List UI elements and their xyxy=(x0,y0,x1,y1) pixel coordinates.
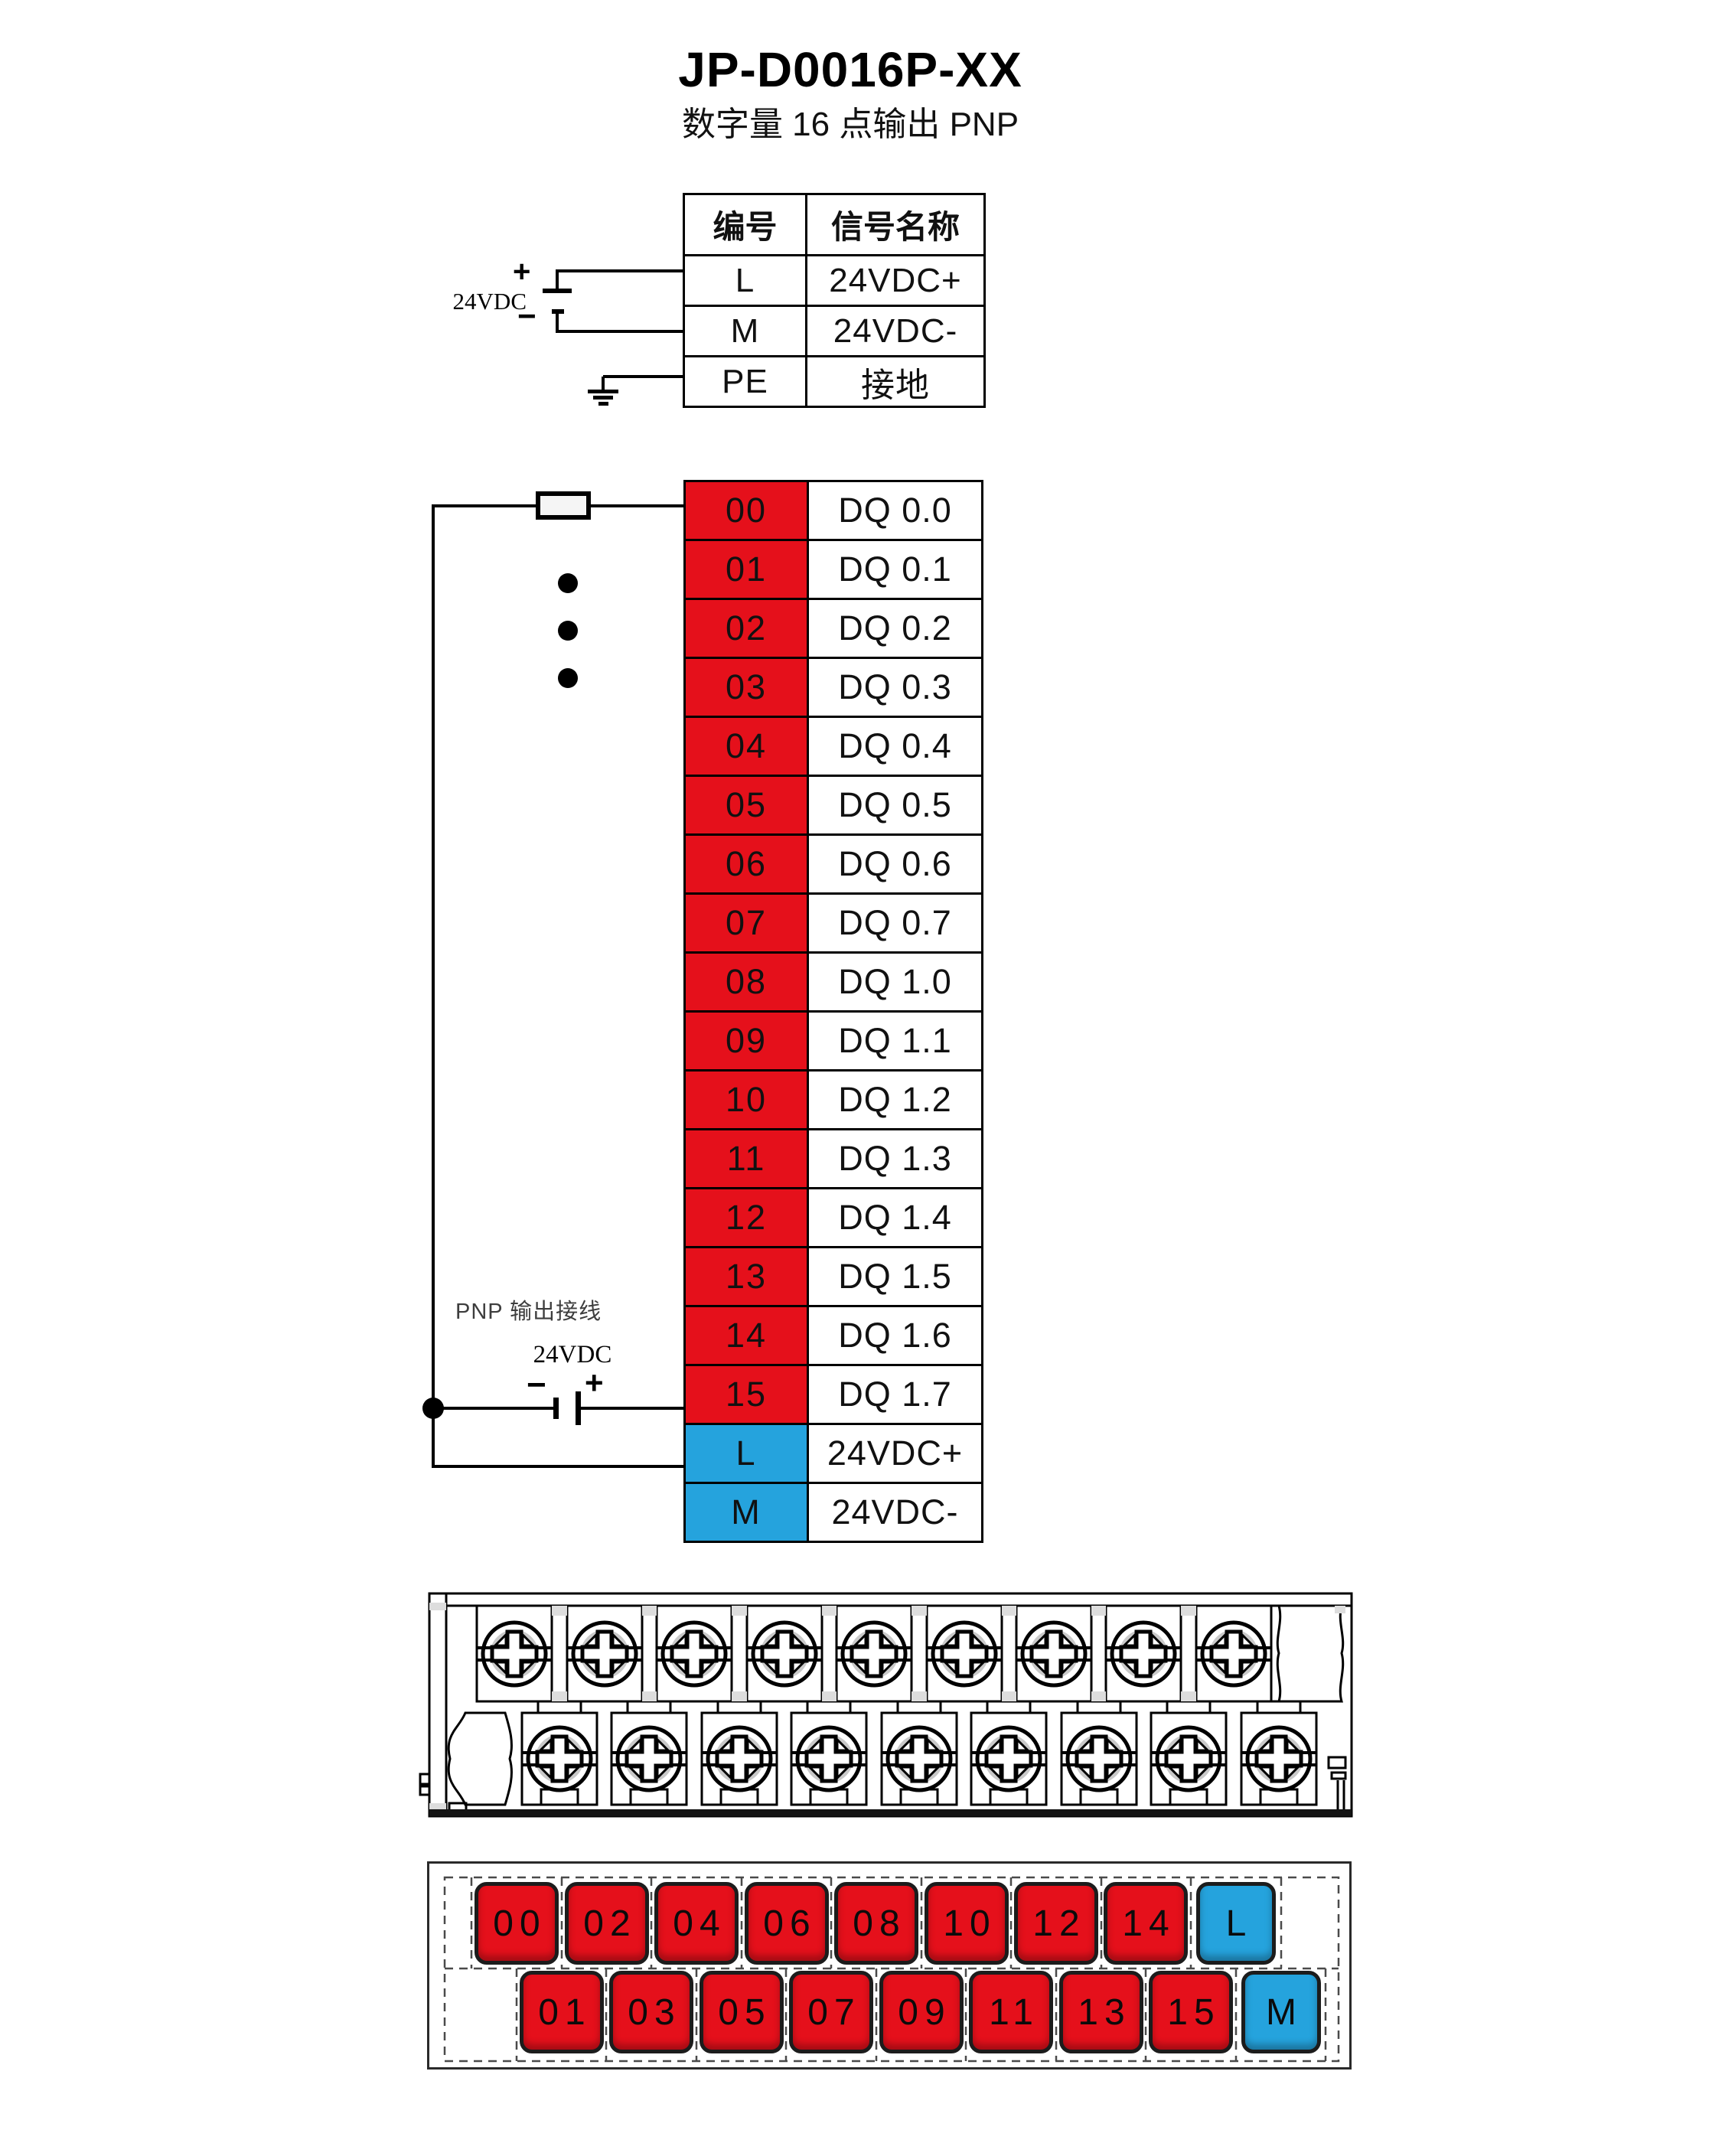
terminal-pad: 04 xyxy=(654,1882,739,1965)
pin-cell: 00 xyxy=(686,482,809,539)
table-row: 02DQ 0.2 xyxy=(686,598,981,657)
pin-cell: 13 xyxy=(686,1248,809,1305)
terminal-pad: 09 xyxy=(879,1971,964,2053)
terminal-pad: 03 xyxy=(609,1971,693,2053)
top-psu-wiring xyxy=(557,271,683,390)
table-row: 11DQ 1.3 xyxy=(686,1128,981,1187)
pin-cell: 02 xyxy=(686,600,809,657)
table-row: 12DQ 1.4 xyxy=(686,1187,981,1246)
signal-cell: 24VDC- xyxy=(809,1484,981,1541)
terminal-pad: 10 xyxy=(925,1882,1009,1965)
pin-cell: 15 xyxy=(686,1366,809,1423)
pin-cell: 06 xyxy=(686,836,809,892)
ground-icon xyxy=(588,390,618,406)
table-row: 07DQ 0.7 xyxy=(686,892,981,951)
signal-cell: DQ 1.0 xyxy=(809,954,981,1010)
io-terminal-table: 00DQ 0.0 01DQ 0.1 02DQ 0.2 03DQ 0.3 04DQ… xyxy=(683,480,983,1543)
terminal-pad: 08 xyxy=(834,1882,918,1965)
signal-cell: DQ 1.2 xyxy=(809,1071,981,1128)
terminal-pad: 02 xyxy=(565,1882,649,1965)
signal-cell: DQ 0.4 xyxy=(809,718,981,775)
signal-cell: 24VDC+ xyxy=(809,1425,981,1482)
table-row: 06DQ 0.6 xyxy=(686,833,981,892)
table-row: 10DQ 1.2 xyxy=(686,1069,981,1128)
pin-cell: L xyxy=(685,256,807,305)
power-table-header-row: 编号 信号名称 xyxy=(685,195,983,254)
table-row: PE 接地 xyxy=(685,355,983,406)
table-row: 03DQ 0.3 xyxy=(686,657,981,716)
bottom-psu-plus-sign: + xyxy=(585,1367,604,1399)
bottom-psu-minus-sign: − xyxy=(527,1368,546,1402)
signal-cell: 接地 xyxy=(807,357,983,406)
signal-cell: DQ 1.4 xyxy=(809,1189,981,1246)
table-row: 08DQ 1.0 xyxy=(686,951,981,1010)
table-row: 09DQ 1.1 xyxy=(686,1010,981,1069)
pnp-wiring-note: PNP 输出接线 xyxy=(455,1293,602,1326)
table-row: 15DQ 1.7 xyxy=(686,1364,981,1423)
terminal-pad: 00 xyxy=(475,1882,559,1965)
pin-cell: M xyxy=(685,307,807,355)
pin-cell: 09 xyxy=(686,1013,809,1069)
pin-cell: 08 xyxy=(686,954,809,1010)
terminal-strip-base xyxy=(429,1809,1352,1816)
signal-cell: 24VDC- xyxy=(807,307,983,355)
pin-cell: PE xyxy=(685,357,807,406)
signal-cell: DQ 0.3 xyxy=(809,659,981,716)
top-psu-plus-sign: + xyxy=(513,256,530,287)
table-row: L 24VDC+ xyxy=(685,254,983,305)
signal-cell: DQ 0.1 xyxy=(809,541,981,598)
pin-cell: M xyxy=(686,1484,809,1541)
top-psu-minus-sign: − xyxy=(517,300,536,332)
terminal-pad: 15 xyxy=(1149,1971,1233,2053)
battery-icon xyxy=(543,289,572,314)
ellipsis-dots-icon xyxy=(558,573,578,688)
pin-cell: 01 xyxy=(686,541,809,598)
signal-cell: DQ 0.6 xyxy=(809,836,981,892)
pin-cell: L xyxy=(686,1425,809,1482)
bottom-psu-label: 24VDC xyxy=(504,1341,641,1369)
terminal-pad: 07 xyxy=(789,1971,873,2053)
pin-cell: 05 xyxy=(686,777,809,833)
signal-cell: DQ 1.1 xyxy=(809,1013,981,1069)
signal-cell: DQ 1.7 xyxy=(809,1366,981,1423)
wire-junction-dot xyxy=(422,1398,444,1419)
pin-cell: 14 xyxy=(686,1307,809,1364)
table-row: 01DQ 0.1 xyxy=(686,539,981,598)
terminal-pad: 06 xyxy=(745,1882,829,1965)
table-row: 13DQ 1.5 xyxy=(686,1246,981,1305)
terminal-pad: 01 xyxy=(520,1971,604,2053)
signal-cell: DQ 0.0 xyxy=(809,482,981,539)
signal-cell: DQ 0.7 xyxy=(809,895,981,951)
power-table-header-pin: 编号 xyxy=(685,195,807,254)
table-row: M24VDC- xyxy=(686,1482,981,1541)
pin-cell: 04 xyxy=(686,718,809,775)
table-row: 00DQ 0.0 xyxy=(686,482,981,539)
pin-cell: 12 xyxy=(686,1189,809,1246)
pin-cell: 10 xyxy=(686,1071,809,1128)
terminal-pad: 13 xyxy=(1059,1971,1143,2053)
signal-cell: DQ 1.3 xyxy=(809,1130,981,1187)
table-row: M 24VDC- xyxy=(685,305,983,355)
signal-cell: DQ 1.5 xyxy=(809,1248,981,1305)
table-row: 14DQ 1.6 xyxy=(686,1305,981,1364)
top-psu-label: 24VDC xyxy=(417,288,527,315)
terminal-pad: 12 xyxy=(1014,1882,1098,1965)
terminal-pad: 14 xyxy=(1104,1882,1188,1965)
power-terminal-table: 编号 信号名称 L 24VDC+ M 24VDC- PE 接地 xyxy=(683,193,986,408)
load-resistor-icon xyxy=(538,494,589,517)
pin-cell: 07 xyxy=(686,895,809,951)
terminal-pad: M xyxy=(1241,1971,1321,2053)
signal-cell: DQ 1.6 xyxy=(809,1307,981,1364)
table-row: L24VDC+ xyxy=(686,1423,981,1482)
signal-cell: DQ 0.5 xyxy=(809,777,981,833)
terminal-layout-panel: 00 02 04 06 08 10 12 14 L 01 03 05 07 09… xyxy=(427,1861,1352,2070)
table-row: 05DQ 0.5 xyxy=(686,775,981,833)
battery-icon-bottom xyxy=(553,1391,581,1425)
table-row: 04DQ 0.4 xyxy=(686,716,981,775)
signal-cell: DQ 0.2 xyxy=(809,600,981,657)
power-table-header-signal: 信号名称 xyxy=(807,195,983,254)
terminal-pad: L xyxy=(1196,1882,1276,1965)
terminal-pad: 11 xyxy=(969,1971,1053,2053)
terminal-pad: 05 xyxy=(700,1971,784,2053)
pin-cell: 03 xyxy=(686,659,809,716)
wiring-diagram-page: JP-D0016P-XX 数字量 16 点输出 PNP xyxy=(0,0,1735,2156)
pin-cell: 11 xyxy=(686,1130,809,1187)
signal-cell: 24VDC+ xyxy=(807,256,983,305)
